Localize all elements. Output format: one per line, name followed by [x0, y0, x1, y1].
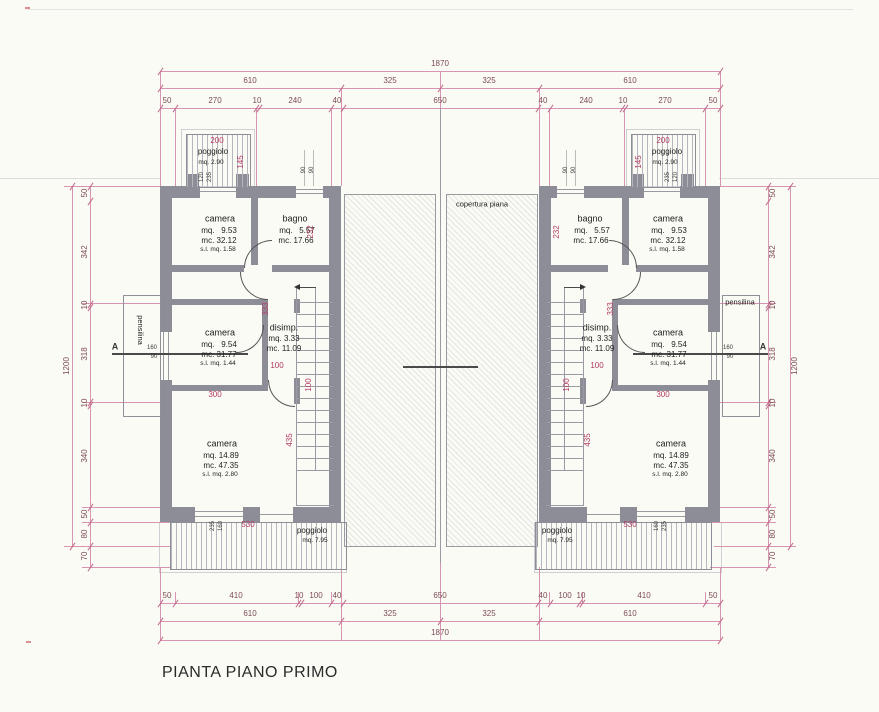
- window-dim: 90: [563, 167, 569, 174]
- dim-line: [72, 186, 73, 546]
- room-area: mq. 5.57: [574, 227, 610, 235]
- door-arc: [609, 240, 637, 268]
- stair-tread: [546, 446, 583, 447]
- room-volume: mc. 17.66: [573, 237, 608, 245]
- dim-label: 435: [286, 433, 294, 446]
- window-dim: 235: [662, 521, 668, 531]
- room-name: camera: [207, 440, 237, 449]
- dim-label: 70: [769, 552, 777, 561]
- room-extra: s.l. mq. 1.58: [200, 247, 235, 254]
- window-dim: 160: [147, 345, 157, 351]
- wall: [272, 265, 329, 272]
- balcony-name: poggiolo: [198, 148, 228, 156]
- wall: [618, 299, 708, 305]
- dim-label: 40: [539, 592, 548, 600]
- window: [557, 193, 584, 194]
- dim-label: 333: [607, 302, 615, 315]
- window-dim: 120: [673, 172, 679, 182]
- wall: [172, 265, 244, 272]
- stair-tread: [546, 398, 583, 399]
- extension-line: [256, 108, 257, 186]
- dim-label: 610: [623, 77, 636, 85]
- door-arc: [617, 325, 645, 353]
- extension-line: [82, 567, 170, 568]
- dim-label: 340: [769, 449, 777, 462]
- extension-line: [64, 186, 160, 187]
- stair-tread: [297, 302, 334, 303]
- extension-line: [64, 546, 170, 547]
- dim-label: 50: [709, 97, 718, 105]
- balcony-area: mq. 2.90: [198, 160, 223, 167]
- dim-label: 240: [288, 97, 301, 105]
- dim-label: 10: [769, 301, 777, 310]
- stair-tread: [546, 362, 583, 363]
- balcony-name: poggiolo: [652, 148, 682, 156]
- balcony-area: mq. 2.90: [652, 160, 677, 167]
- dim-label: 530: [623, 521, 636, 529]
- dim-line: [90, 186, 91, 567]
- room-volume: mc. 11.09: [580, 345, 615, 353]
- extension-line: [549, 108, 550, 186]
- balcony-area: mq. 7.95: [547, 538, 572, 545]
- window: [163, 332, 164, 380]
- wall: [685, 507, 720, 522]
- wall: [539, 198, 551, 507]
- flat-roof-label: copertura piana: [456, 200, 508, 208]
- dim-label: 300: [656, 391, 669, 399]
- stair-tread: [546, 374, 583, 375]
- room-volume: mc. 31.77: [201, 351, 236, 359]
- dim-label: 342: [81, 245, 89, 258]
- dim-label: 610: [623, 610, 636, 618]
- dim-label: 1870: [431, 60, 449, 68]
- dim-label: 318: [769, 347, 777, 360]
- flat-roof-right: [446, 194, 538, 547]
- stair-tread: [297, 458, 334, 459]
- section-marker: A: [760, 343, 767, 352]
- registration-mark: [26, 641, 31, 643]
- stair-tread: [546, 410, 583, 411]
- scan-edge-line: [27, 9, 853, 10]
- center-axis-line: [440, 108, 441, 563]
- room-name: camera: [653, 215, 683, 224]
- room-name: camera: [656, 440, 686, 449]
- room-name: camera: [653, 329, 683, 338]
- stair-arrow-icon: [580, 284, 586, 290]
- dim-label: 40: [539, 97, 548, 105]
- dim-label: 325: [482, 610, 495, 618]
- dim-label: 410: [637, 592, 650, 600]
- dim-label: 610: [243, 77, 256, 85]
- room-volume: mc. 11.09: [267, 345, 302, 353]
- dim-label: 1200: [63, 357, 71, 375]
- window-dim: 235: [665, 172, 671, 182]
- room-extra: s.l. mq. 2.80: [652, 472, 687, 479]
- stair-tread: [546, 350, 583, 351]
- dim-label: 100: [590, 362, 603, 370]
- stair-tread: [297, 326, 334, 327]
- center-cross-line: [403, 366, 478, 368]
- room-extra: s.l. mq. 1.58: [649, 247, 684, 254]
- room-volume: mc. 32.12: [650, 237, 685, 245]
- window: [711, 332, 712, 380]
- dim-label: 325: [383, 77, 396, 85]
- stair-arrow-icon: [294, 284, 300, 290]
- dim-label: 80: [769, 530, 777, 539]
- wall: [172, 299, 262, 305]
- stair-tread: [546, 470, 583, 471]
- wall: [329, 198, 341, 507]
- dim-label: 240: [579, 97, 592, 105]
- room-extra: s.l. mq. 1.44: [650, 361, 685, 368]
- dim-label: 145: [237, 155, 245, 168]
- stair-tread: [297, 338, 334, 339]
- room-name: bagno: [577, 215, 602, 224]
- dim-label: 100: [558, 592, 571, 600]
- ground-floor-outline: [719, 178, 879, 179]
- door-arc: [268, 380, 295, 407]
- stair-tread: [546, 302, 583, 303]
- dim-label: 410: [229, 592, 242, 600]
- room-name: camera: [205, 215, 235, 224]
- dim-label: 10: [253, 97, 262, 105]
- window-dim: 120: [199, 172, 205, 182]
- room-extra: s.l. mq. 1.44: [200, 361, 235, 368]
- window-dim: 160: [654, 521, 660, 531]
- stair-tread: [297, 350, 334, 351]
- stair-tread: [297, 374, 334, 375]
- dim-label: 270: [208, 97, 221, 105]
- room-area: mq. 9.54: [201, 341, 237, 349]
- dim-label: 50: [81, 510, 89, 519]
- stair-tread: [297, 446, 334, 447]
- stair-tread: [546, 326, 583, 327]
- wall: [539, 186, 557, 198]
- window-dim: 90: [727, 354, 734, 360]
- drawing-title: PIANTA PIANO PRIMO: [162, 664, 338, 682]
- dim-label: 270: [658, 97, 671, 105]
- room-area: mq. 3.33: [268, 335, 299, 343]
- dim-label: 100: [563, 378, 571, 391]
- stair-tread: [297, 434, 334, 435]
- wall: [160, 507, 195, 522]
- dim-label: 232: [553, 225, 561, 238]
- stair-landing: [546, 505, 583, 506]
- dim-label: 200: [210, 137, 223, 145]
- room-area: mq. 14.89: [653, 452, 689, 460]
- stair-tread: [297, 386, 334, 387]
- dim-line: [160, 640, 720, 641]
- room-volume: mc. 31.77: [651, 351, 686, 359]
- balcony-name: poggiolo: [542, 527, 572, 535]
- stair-rail: [296, 287, 297, 506]
- room-name: disimp.: [583, 324, 612, 333]
- pensilina-label: pensilina: [725, 298, 755, 306]
- stair-tread: [297, 422, 334, 423]
- wall: [323, 186, 341, 198]
- dim-label: 200: [656, 137, 669, 145]
- wall: [708, 380, 720, 522]
- wall: [160, 380, 172, 522]
- door-arc: [236, 325, 264, 353]
- stair-tread: [297, 398, 334, 399]
- flat-roof-left: [344, 194, 436, 547]
- dim-label: 50: [769, 510, 777, 519]
- pensilina-label: pensilina: [136, 315, 144, 345]
- dim-label: 100: [270, 362, 283, 370]
- dim-label: 530: [241, 521, 254, 529]
- door-arc: [586, 380, 613, 407]
- dim-label: 1870: [431, 629, 449, 637]
- room-area: mq. 9.53: [201, 227, 237, 235]
- stair-tread: [546, 458, 583, 459]
- wall: [636, 265, 708, 272]
- dim-label: 333: [262, 302, 270, 315]
- extension-line: [624, 108, 625, 186]
- dim-label: 50: [163, 97, 172, 105]
- room-volume: mc. 32.12: [201, 237, 236, 245]
- window: [168, 332, 169, 380]
- wall: [551, 265, 608, 272]
- window-dim: 90: [301, 167, 307, 174]
- dim-label: 300: [208, 391, 221, 399]
- dim-label: 40: [333, 97, 342, 105]
- dim-label: 10: [81, 301, 89, 310]
- window-dim: 160: [218, 521, 224, 531]
- dim-label: 145: [635, 155, 643, 168]
- extension-line: [720, 186, 796, 187]
- dim-label: 50: [769, 189, 777, 198]
- balcony-name: poggiolo: [297, 527, 327, 535]
- stair-direction-line: [564, 287, 580, 288]
- section-marker: A: [112, 343, 119, 352]
- dim-label: 650: [433, 97, 446, 105]
- balcony-area: mq. 7.95: [302, 538, 327, 545]
- stair-tread: [546, 434, 583, 435]
- room-area: mq. 9.54: [651, 341, 687, 349]
- stair-tread: [297, 314, 334, 315]
- wall: [539, 507, 587, 522]
- room-extra: s.l. mq. 2.80: [202, 472, 237, 479]
- window-dim: 160: [723, 345, 733, 351]
- stair-tread: [297, 470, 334, 471]
- door-threshold: [644, 191, 680, 192]
- door-arc: [240, 272, 268, 300]
- window: [195, 516, 243, 517]
- dim-label: 10: [619, 97, 628, 105]
- dim-label: 318: [81, 347, 89, 360]
- extension-line: [539, 567, 540, 640]
- window: [637, 516, 685, 517]
- room-volume: mc. 47.35: [653, 462, 688, 470]
- extension-line: [175, 108, 176, 186]
- dim-label: 342: [769, 245, 777, 258]
- window: [637, 511, 685, 512]
- room-name: bagno: [282, 215, 307, 224]
- wall: [708, 198, 720, 332]
- dim-tick: [718, 637, 724, 645]
- dim-label: 232: [307, 225, 315, 238]
- dim-label: 40: [333, 592, 342, 600]
- dim-label: 10: [577, 592, 586, 600]
- dim-label: 325: [383, 610, 396, 618]
- window-dim: 90: [151, 354, 158, 360]
- stair-tread: [297, 410, 334, 411]
- registration-mark: [25, 7, 30, 9]
- window: [716, 332, 717, 380]
- room-area: mq. 3.33: [581, 335, 612, 343]
- door-arc: [613, 272, 641, 300]
- wall: [160, 198, 172, 332]
- dim-label: 100: [305, 378, 313, 391]
- extension-line: [82, 507, 160, 508]
- window: [557, 189, 584, 190]
- dim-label: 610: [243, 610, 256, 618]
- door-threshold: [260, 514, 293, 515]
- window-dim: 90: [571, 167, 577, 174]
- window-dim: 90: [309, 167, 315, 174]
- dim-label: 650: [433, 592, 446, 600]
- dim-label: 80: [81, 530, 89, 539]
- extension-line: [82, 522, 170, 523]
- dim-label: 70: [81, 552, 89, 561]
- dim-label: 10: [769, 399, 777, 408]
- stair-tread: [297, 362, 334, 363]
- dim-label: 50: [709, 592, 718, 600]
- dim-label: 325: [482, 77, 495, 85]
- extension-line: [331, 108, 332, 186]
- dim-label: 340: [81, 449, 89, 462]
- window: [195, 511, 243, 512]
- window-dim: 235: [207, 172, 213, 182]
- dim-label: 50: [163, 592, 172, 600]
- window-dim: 235: [210, 521, 216, 531]
- room-area: mq. 9.53: [651, 227, 687, 235]
- window: [296, 193, 323, 194]
- room-area: mq. 14.89: [203, 452, 239, 460]
- door-threshold: [587, 514, 620, 515]
- dim-label: 50: [81, 189, 89, 198]
- window: [296, 189, 323, 190]
- extension-line: [714, 546, 796, 547]
- dim-label: 1200: [791, 357, 799, 375]
- dim-label: 10: [295, 592, 304, 600]
- dim-label: 100: [309, 592, 322, 600]
- ground-floor-outline: [0, 178, 161, 179]
- dim-label: 435: [584, 433, 592, 446]
- stair-direction-line: [300, 287, 316, 288]
- room-name: disimp.: [270, 324, 299, 333]
- stair-rail: [583, 287, 584, 506]
- dim-label: 10: [81, 399, 89, 408]
- stair-landing: [297, 505, 334, 506]
- wall: [293, 507, 341, 522]
- extension-line: [705, 108, 706, 186]
- stair-tread: [546, 422, 583, 423]
- stair-tread: [546, 314, 583, 315]
- room-name: camera: [205, 329, 235, 338]
- door-threshold: [200, 191, 236, 192]
- door-arc: [244, 240, 272, 268]
- room-volume: mc. 47.35: [203, 462, 238, 470]
- stair-tread: [546, 338, 583, 339]
